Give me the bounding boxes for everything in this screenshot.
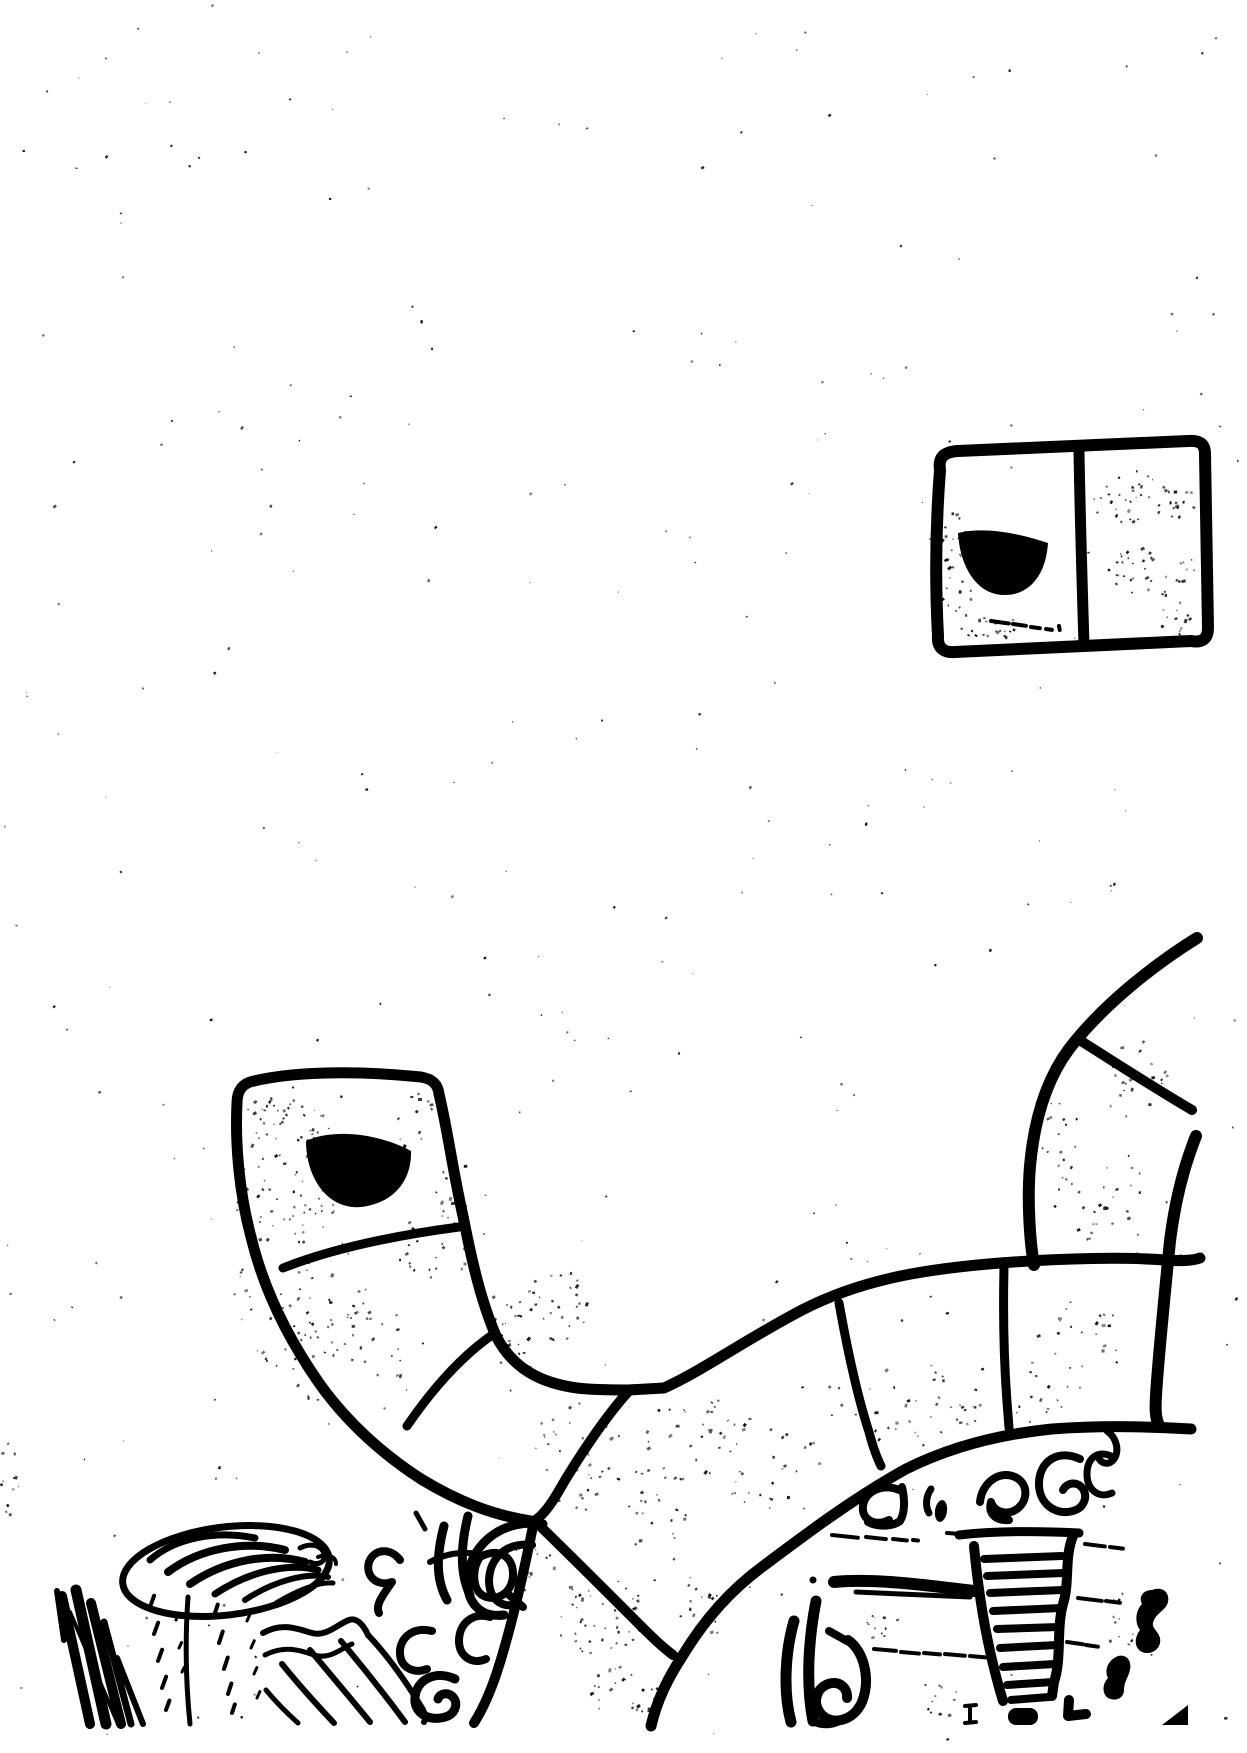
speckle-dot xyxy=(817,439,818,440)
interior-dash xyxy=(1067,1642,1083,1644)
speckle-dot xyxy=(1170,313,1173,316)
ramp-sketch xyxy=(263,1619,425,1723)
speckle-dot xyxy=(585,1302,589,1307)
speckle-dot xyxy=(1167,490,1170,493)
speckle-dot xyxy=(1127,1643,1130,1645)
speckle-dot xyxy=(904,366,907,369)
speckle-dot xyxy=(684,1411,686,1413)
speckle-dot xyxy=(318,1198,321,1200)
speckle-dot xyxy=(1131,577,1134,579)
speckle-dot xyxy=(887,1427,890,1430)
sketch-page xyxy=(0,0,1247,1753)
speckle-dot xyxy=(576,738,578,740)
speckle-dot xyxy=(668,1408,671,1411)
speckle-dot xyxy=(551,1418,554,1421)
interior-dash xyxy=(1085,1544,1105,1546)
speckle-dot xyxy=(748,1492,751,1494)
speckle-dot xyxy=(1040,687,1041,689)
window-dash xyxy=(1031,627,1040,628)
arm-divider-1 xyxy=(283,1227,459,1268)
speckle-dot xyxy=(701,166,705,170)
speckle-dot xyxy=(530,1572,533,1576)
speckle-dot xyxy=(673,1537,675,1540)
speckle-dot xyxy=(787,1496,791,1500)
speckle-dot xyxy=(1106,1167,1108,1169)
ink-drawing xyxy=(0,0,1247,1753)
speckle-dot xyxy=(769,1428,772,1431)
speckle-dot xyxy=(411,305,414,308)
speckle-dot xyxy=(488,993,491,996)
speckle-dot xyxy=(408,1244,411,1247)
speckle-dot xyxy=(336,1349,338,1351)
speckle-dot xyxy=(499,1361,502,1364)
speckle-dot xyxy=(965,614,968,617)
speckle-dot xyxy=(451,1202,456,1206)
speckle-dot xyxy=(646,1446,651,1451)
speckle-dot xyxy=(780,1593,783,1595)
speckle-dot xyxy=(1042,1147,1044,1149)
tower-rung xyxy=(997,1627,1059,1629)
speckle-dot xyxy=(211,4,215,8)
speckle-dot xyxy=(1234,1297,1238,1301)
speckle-dot xyxy=(381,1323,384,1326)
speckle-dot xyxy=(260,468,263,471)
speckle-dot xyxy=(312,1355,315,1358)
speckle-dot xyxy=(550,1274,553,1277)
sticks-sketch xyxy=(57,1590,143,1724)
speckle-dot xyxy=(575,1506,578,1509)
speckle-dot xyxy=(830,893,832,895)
speckle-dot xyxy=(735,341,737,343)
speckle-dot xyxy=(582,1437,584,1439)
speckle-dot xyxy=(904,769,906,771)
speckle-dot xyxy=(1061,1406,1063,1408)
speckle-dot xyxy=(1219,425,1222,427)
speckle-dot xyxy=(499,1457,500,1458)
speckle-dot xyxy=(365,1289,367,1291)
speckle-dot xyxy=(122,276,123,278)
speckle-dot xyxy=(981,1368,984,1371)
interior-dash xyxy=(913,1540,918,1541)
speckle-dot xyxy=(106,1734,108,1736)
speckle-dot xyxy=(1180,1254,1182,1256)
speckle-dot xyxy=(579,1620,582,1623)
speckle-dot xyxy=(416,1240,419,1243)
speckle-dot xyxy=(413,1269,416,1272)
speckle-dot xyxy=(967,634,970,637)
speckle-dot xyxy=(881,892,883,894)
speckle-dot xyxy=(105,796,106,797)
speckle-dot xyxy=(321,1170,323,1171)
speckle-dot xyxy=(929,1295,931,1297)
speckle-dot xyxy=(1077,1228,1081,1232)
speckle-dot xyxy=(1062,1118,1065,1121)
speckle-dot xyxy=(942,1379,945,1382)
scribble-c4 xyxy=(459,1616,490,1661)
speckle-dot xyxy=(1098,1314,1101,1317)
speckle-dot xyxy=(1164,489,1168,493)
speckle-dot xyxy=(302,1240,306,1244)
speckle-dot xyxy=(441,1243,443,1245)
i-glyph xyxy=(965,1705,976,1723)
speckle-dot xyxy=(555,1433,557,1435)
speckle-dot xyxy=(713,1733,714,1734)
speckle-dot xyxy=(1124,1005,1125,1006)
speckle-dot xyxy=(1165,1201,1168,1204)
speckle-dot xyxy=(1162,486,1165,489)
speckle-dot xyxy=(636,1708,639,1711)
speckle-dot xyxy=(644,1500,647,1503)
speckle-dot xyxy=(1150,580,1153,582)
speckle-dot xyxy=(408,423,410,425)
speckle-dot xyxy=(1019,1405,1021,1408)
speckle-dot xyxy=(642,1512,644,1514)
speckle-dot xyxy=(813,1212,815,1214)
speckle-dot xyxy=(574,1632,576,1635)
speckle-dot xyxy=(1010,1674,1013,1676)
speckle-dot xyxy=(927,1708,930,1711)
trail-dash xyxy=(158,1650,162,1661)
speckle-dot xyxy=(1147,475,1150,478)
speckle-dot xyxy=(463,1263,466,1266)
speckle-dot xyxy=(940,1685,943,1688)
speckle-dot xyxy=(322,1226,324,1228)
speckle-dot xyxy=(1109,1640,1112,1643)
speckle-dot xyxy=(113,1534,116,1537)
speckle-dot xyxy=(53,504,57,508)
speckle-dot xyxy=(607,1038,609,1040)
speckle-dot xyxy=(701,333,702,335)
speckle-dot xyxy=(581,1597,584,1602)
speckle-dot xyxy=(420,320,423,323)
speckle-dot xyxy=(5,1510,8,1513)
speckle-dot xyxy=(518,1352,521,1355)
speckle-dot xyxy=(1058,1317,1062,1320)
speckle-dot xyxy=(14,1476,18,1480)
speckle-dot xyxy=(687,1584,690,1587)
speckle-dot xyxy=(518,1343,520,1345)
speckle-dot xyxy=(559,1274,562,1277)
speckle-dot xyxy=(120,222,122,224)
speckle-dot xyxy=(169,101,170,102)
speckle-dot xyxy=(609,1436,614,1441)
speckle-dot xyxy=(440,1200,444,1205)
speckle-dot xyxy=(505,1323,506,1324)
speckle-dot xyxy=(536,1553,538,1555)
speckle-dot xyxy=(540,1014,542,1016)
speckle-dot xyxy=(651,1688,653,1690)
speckle-dot xyxy=(934,964,937,967)
speckle-dot xyxy=(584,1624,587,1627)
speckle-dot xyxy=(510,1389,512,1391)
speckle-dot xyxy=(785,1433,789,1436)
speckle-dot xyxy=(605,1195,607,1197)
speckle-dot xyxy=(273,1123,275,1125)
speckle-dot xyxy=(1126,550,1130,554)
speckle-dot xyxy=(946,1738,949,1741)
speckle-dot xyxy=(357,1290,360,1293)
speckle-dot xyxy=(972,1406,974,1408)
speckle-dot xyxy=(940,1431,943,1434)
speckle-dot xyxy=(886,1248,887,1249)
speckle-dot xyxy=(969,598,972,602)
speckle-dot xyxy=(1178,580,1181,583)
speckle-dot xyxy=(399,1259,401,1261)
speckle-dot xyxy=(1150,1654,1152,1656)
speckle-dot xyxy=(1059,1150,1063,1154)
speckle-dot xyxy=(120,212,122,214)
speckle-dot xyxy=(361,773,364,775)
speckle-dot xyxy=(1125,499,1127,501)
speckle-dot xyxy=(1050,1103,1052,1105)
speckle-dot xyxy=(0,1484,3,1487)
speckle-dot xyxy=(1126,1210,1129,1213)
speckle-dot xyxy=(203,1148,205,1150)
scribble-tick xyxy=(416,1513,425,1529)
speckle-dot xyxy=(532,1292,535,1294)
speckle-dot xyxy=(145,103,146,104)
speckle-dot xyxy=(415,1110,419,1114)
band-divider xyxy=(1081,1041,1192,1110)
arm-inner-edge xyxy=(439,1094,628,1390)
speckle-dot xyxy=(283,1218,286,1221)
tower-rung xyxy=(993,1608,1061,1611)
speckle-dot xyxy=(22,150,25,152)
speckle-dot xyxy=(919,1253,921,1254)
speckle-dot xyxy=(1045,1411,1047,1413)
speckle-dot xyxy=(1169,501,1171,504)
speckle-dot xyxy=(597,1674,600,1678)
speckle-dot xyxy=(292,1215,294,1217)
speckle-dot xyxy=(959,554,962,556)
trail-dash xyxy=(179,1643,182,1648)
speckle-dot xyxy=(266,1105,268,1108)
speckle-dot xyxy=(985,620,988,622)
speckle-dot xyxy=(1107,1324,1111,1327)
speckle-dot xyxy=(647,1469,650,1472)
speckle-dot xyxy=(575,1293,579,1296)
speckle-dot xyxy=(1138,483,1141,486)
speckle-dot xyxy=(564,484,566,486)
speckle-dot xyxy=(1163,1070,1167,1074)
speckle-dot xyxy=(616,1626,618,1629)
speckle-dot xyxy=(1092,1260,1095,1262)
speckle-dot xyxy=(316,1131,319,1134)
speckle-dot xyxy=(1120,553,1122,555)
speckle-dot xyxy=(461,1268,463,1271)
speckle-dot xyxy=(405,1252,409,1256)
speckle-dot xyxy=(701,1596,703,1598)
speckle-dot xyxy=(869,1388,871,1390)
speckle-dot xyxy=(534,1303,537,1306)
speckle-dot xyxy=(838,1387,840,1390)
speckle-dot xyxy=(1226,1344,1228,1346)
speckle-dot xyxy=(907,1399,911,1403)
speckle-dot xyxy=(1181,579,1186,583)
rim-divider-mid xyxy=(839,1303,881,1466)
speckle-dot xyxy=(948,440,951,443)
speckle-dot xyxy=(261,1350,266,1355)
speckle-dot xyxy=(1103,1344,1107,1348)
speckle-dot xyxy=(347,1316,349,1318)
speckle-dot xyxy=(812,1442,815,1445)
window-divider xyxy=(1079,451,1084,645)
speckle-dot xyxy=(961,580,964,583)
speckle-dot xyxy=(309,1297,311,1299)
speckle-dot xyxy=(739,1471,741,1473)
speckle-dot xyxy=(1010,424,1013,427)
speckle-dot xyxy=(740,1472,744,1476)
scribble-e-loop xyxy=(368,1551,400,1613)
speckle-dot xyxy=(598,1699,600,1701)
speckle-dot xyxy=(529,582,531,584)
speckle-dot xyxy=(694,1587,698,1590)
speckle-dot xyxy=(717,1399,720,1402)
speckle-dot xyxy=(809,1442,812,1445)
speckle-dot xyxy=(959,590,962,594)
speckle-dot xyxy=(542,1317,544,1320)
speckle-dot xyxy=(526,1336,531,1341)
speckle-dot xyxy=(265,1358,268,1361)
speckle-dot xyxy=(1120,555,1122,557)
rounded-blob xyxy=(1008,1708,1038,1725)
speckle-dot xyxy=(529,492,533,496)
speckle-dot xyxy=(545,1556,548,1559)
speckle-dot xyxy=(1103,1186,1105,1188)
speckle-dot xyxy=(576,1317,579,1320)
speckle-dot xyxy=(621,1612,623,1614)
speckle-dot xyxy=(1058,1103,1060,1105)
speckle-dot xyxy=(948,1713,952,1717)
speckle-dot xyxy=(1096,511,1099,514)
speckle-dot xyxy=(944,526,947,529)
interior-dash xyxy=(866,1537,886,1539)
speckle-dot xyxy=(296,1383,300,1387)
speckle-dot xyxy=(647,1707,651,1712)
speckle-dot xyxy=(1192,506,1196,509)
arm-sketch xyxy=(237,1073,628,1521)
speckle-dot xyxy=(1193,569,1195,571)
speckle-dot xyxy=(7,1442,10,1445)
scribble-c3 xyxy=(400,1630,432,1671)
speckle-dot xyxy=(633,330,636,332)
speckle-dot xyxy=(645,1430,649,1434)
speckle-dot xyxy=(1136,470,1138,473)
speckle-dot xyxy=(241,1319,243,1321)
speckle-dot xyxy=(637,1594,640,1597)
speckle-dot xyxy=(208,1624,210,1626)
speckle-dot xyxy=(1140,485,1143,489)
speckle-dot xyxy=(657,1409,661,1413)
speckle-dot xyxy=(989,949,992,952)
speckle-dot xyxy=(142,687,144,689)
speckle-dot xyxy=(740,131,743,134)
speckle-dot xyxy=(1107,568,1110,571)
speckle-dot xyxy=(1016,1412,1018,1414)
speckle-dot xyxy=(855,1414,857,1416)
window-half-disc xyxy=(958,530,1048,595)
speckle-dot xyxy=(9,1293,12,1295)
speckle-dot xyxy=(578,1593,582,1597)
speckle-dot xyxy=(698,713,701,716)
speckle-dot xyxy=(227,647,230,651)
speckle-dot xyxy=(790,482,794,486)
speckle-dot xyxy=(528,1290,531,1293)
curl-2 xyxy=(927,1489,931,1513)
speckle-dot xyxy=(618,591,620,593)
speckle-dot xyxy=(211,1218,213,1220)
speckle-dot xyxy=(1118,1636,1120,1638)
speckle-dot xyxy=(900,245,902,248)
speckle-dot xyxy=(601,1470,604,1472)
speckle-dot xyxy=(1148,1103,1152,1107)
speckle-dot xyxy=(614,1609,617,1611)
speckle-dot xyxy=(209,1018,212,1021)
speckle-dot xyxy=(1179,601,1181,604)
speckle-dot xyxy=(585,1508,588,1511)
speckle-dot xyxy=(1129,500,1131,503)
speckle-dot xyxy=(1115,514,1118,518)
speckle-dot xyxy=(329,1301,332,1304)
speckle-dot xyxy=(578,1302,580,1305)
speckle-dot xyxy=(1157,511,1160,515)
speckle-dot xyxy=(354,1312,356,1314)
speckle-dot xyxy=(544,1436,546,1438)
speckle-dot xyxy=(464,1165,468,1168)
speckle-dot xyxy=(1098,1203,1102,1207)
speckle-dot xyxy=(683,1409,685,1411)
speckle-dot xyxy=(254,1655,257,1658)
speckle-dot xyxy=(785,552,787,554)
speckle-dot xyxy=(1176,610,1178,611)
speckle-dot xyxy=(924,1684,926,1686)
speckle-dot xyxy=(883,377,885,379)
trail-dash xyxy=(251,1641,254,1648)
speckle-dot xyxy=(759,1494,762,1497)
speckle-dot xyxy=(1161,1082,1163,1084)
speckle-dot xyxy=(1200,392,1203,395)
speckle-dot xyxy=(1174,617,1177,619)
speckle-dot xyxy=(1056,1399,1059,1402)
speckle-dot xyxy=(321,1210,323,1212)
speckle-dot xyxy=(1201,52,1204,55)
trail-dash xyxy=(224,1658,228,1669)
speckle-dot xyxy=(1131,1088,1134,1092)
speckle-dot xyxy=(258,1238,262,1242)
speckle-dot xyxy=(1187,614,1189,616)
speckle-dot xyxy=(721,58,723,59)
speckle-dot xyxy=(1012,619,1015,622)
speckle-dot xyxy=(303,1114,306,1117)
speckle-dot xyxy=(276,752,277,753)
speckle-dot xyxy=(514,1314,517,1317)
speckle-dot xyxy=(9,1513,12,1516)
speckle-dot xyxy=(258,52,260,54)
speckle-dot xyxy=(586,1489,589,1492)
speckle-dot xyxy=(665,916,668,919)
speckle-dot xyxy=(749,786,752,789)
speckle-dot xyxy=(270,1210,273,1212)
speckle-dot xyxy=(884,1368,889,1373)
speckle-dot xyxy=(613,906,616,909)
speckle-dot xyxy=(519,1111,521,1113)
speckle-dot xyxy=(422,1342,424,1344)
curl-1 xyxy=(863,1487,904,1526)
speckle-dot xyxy=(598,1686,601,1689)
speckle-dot xyxy=(397,1348,400,1351)
speckle-dot xyxy=(676,1425,680,1428)
speckle-dot xyxy=(1039,1398,1043,1402)
